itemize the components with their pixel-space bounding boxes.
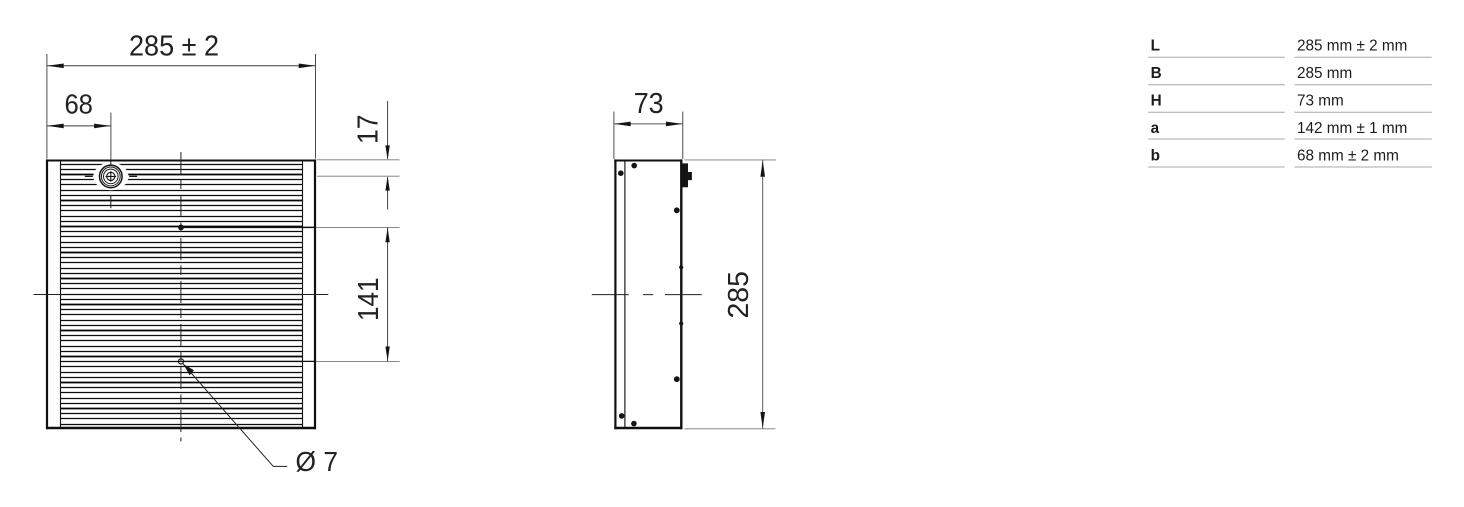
svg-text:b: b	[1151, 148, 1160, 165]
svg-text:73: 73	[634, 88, 664, 120]
svg-text:68: 68	[64, 88, 93, 119]
svg-text:73 mm: 73 mm	[1297, 93, 1344, 110]
svg-text:285: 285	[723, 271, 755, 319]
svg-text:a: a	[1151, 120, 1160, 137]
svg-text:285 mm: 285 mm	[1297, 65, 1352, 82]
svg-text:L: L	[1151, 38, 1160, 55]
svg-text:68 mm ± 2 mm: 68 mm ± 2 mm	[1297, 148, 1399, 165]
svg-text:B: B	[1151, 65, 1162, 82]
svg-text:H: H	[1151, 93, 1162, 110]
svg-text:285 mm ± 2 mm: 285 mm ± 2 mm	[1297, 38, 1407, 55]
svg-text:17: 17	[353, 114, 385, 144]
svg-text:141: 141	[353, 277, 385, 321]
svg-text:285 ± 2: 285 ± 2	[129, 31, 219, 63]
svg-text:142 mm ± 1 mm: 142 mm ± 1 mm	[1297, 120, 1407, 137]
svg-text:Ø 7: Ø 7	[296, 446, 339, 477]
